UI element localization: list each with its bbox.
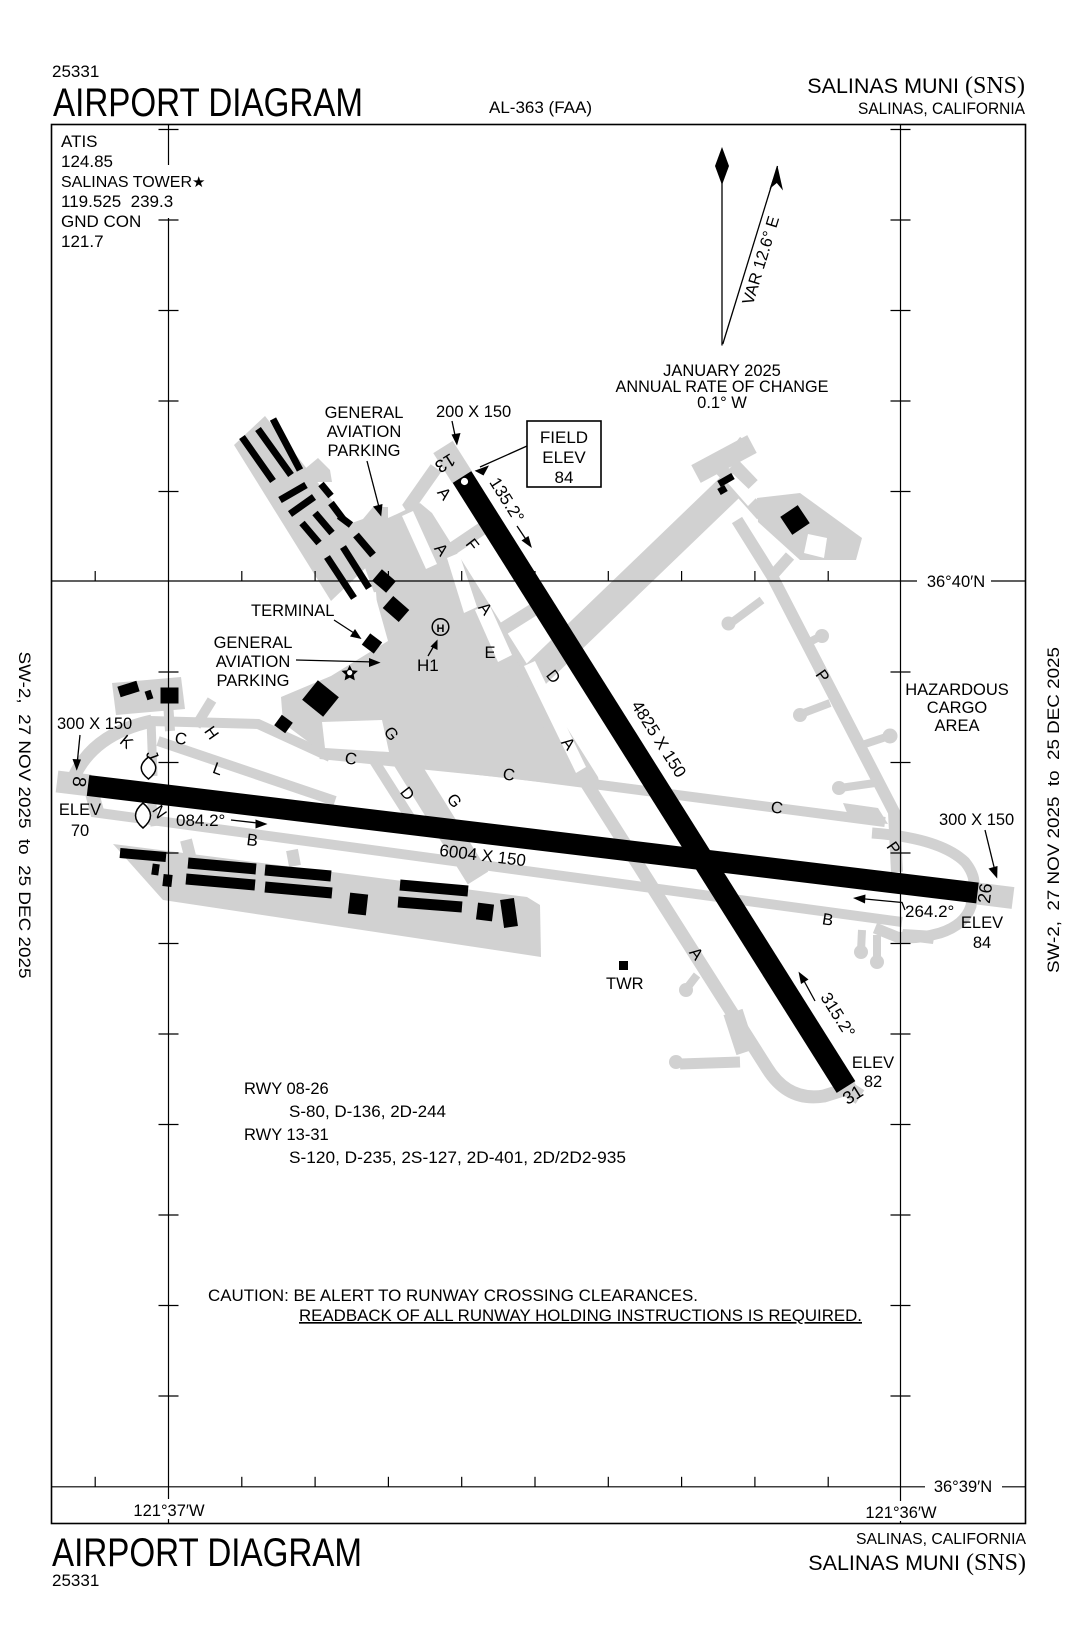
svg-text:HAZARDOUS: HAZARDOUS [905,681,1009,699]
svg-text:SALINAS, CALIFORNIA: SALINAS, CALIFORNIA [858,100,1025,118]
svg-text:SW-2, 27 NOV 2025 to 25 DEC: SW-2, 27 NOV 2025 to 25 DEC 2025 [1045,647,1063,973]
svg-text:25331: 25331 [52,1571,99,1590]
svg-text:S-120, D-235, 2S-127, 2D-401,: S-120, D-235, 2S-127, 2D-401, 2D/2D2-935 [289,1149,626,1167]
svg-text:GENERAL: GENERAL [325,404,404,422]
svg-text:CAUTION: BE ALERT TO RUNWAY CR: CAUTION: BE ALERT TO RUNWAY CROSSING CLE… [208,1287,698,1305]
svg-text:RWY 08-26: RWY 08-26 [244,1080,329,1098]
svg-text:ATIS: ATIS [61,132,98,151]
svg-text:119.525 239.3: 119.525 239.3 [61,192,173,211]
svg-text:GND CON: GND CON [61,212,141,231]
svg-text:PARKING: PARKING [327,442,400,460]
svg-text:SALINAS TOWER★: SALINAS TOWER★ [61,174,205,191]
svg-text:36°40′N: 36°40′N [927,573,985,591]
svg-text:264.2°: 264.2° [905,902,954,921]
svg-text:84: 84 [555,468,574,487]
svg-text:H: H [437,623,445,635]
svg-text:84: 84 [973,934,991,952]
svg-text:121°36′W: 121°36′W [865,1504,937,1522]
svg-text:S-80, D-136, 2D-244: S-80, D-136, 2D-244 [289,1103,446,1121]
svg-text:E: E [484,644,495,662]
svg-text:TERMINAL: TERMINAL [251,602,334,620]
svg-text:200 X 150: 200 X 150 [436,403,511,421]
svg-text:ELEV: ELEV [59,801,101,819]
svg-text:ELEV: ELEV [961,914,1003,932]
svg-text:READBACK OF ALL RUNWAY HOLDING: READBACK OF ALL RUNWAY HOLDING INSTRUCTI… [299,1307,862,1325]
svg-text:ELEV: ELEV [542,448,586,467]
svg-text:B: B [246,830,260,850]
svg-text:25331: 25331 [52,62,99,81]
svg-text:TWR: TWR [606,975,644,993]
svg-text:SALINAS MUNI (SNS): SALINAS MUNI (SNS) [807,73,1025,99]
svg-text:0.1° W: 0.1° W [697,394,747,412]
svg-text:70: 70 [71,822,89,840]
svg-text:AL-363 (FAA): AL-363 (FAA) [489,98,592,117]
svg-text:AIRPORT DIAGRAM: AIRPORT DIAGRAM [53,81,363,125]
svg-text:084.2°: 084.2° [176,811,225,830]
svg-text:AREA: AREA [935,717,980,735]
svg-text:ELEV: ELEV [852,1054,894,1072]
svg-text:82: 82 [864,1073,882,1091]
svg-text:121.7: 121.7 [61,232,104,251]
svg-text:124.85: 124.85 [61,152,113,171]
svg-text:AVIATION: AVIATION [216,653,291,671]
svg-text:H1: H1 [417,656,439,675]
svg-text:300 X 150: 300 X 150 [57,715,132,733]
svg-text:AVIATION: AVIATION [327,423,402,441]
svg-text:CARGO: CARGO [927,699,988,717]
svg-text:SW-2, 27 NOV 2025 to 25 DEC: SW-2, 27 NOV 2025 to 25 DEC 2025 [15,652,33,979]
svg-text:300 X 150: 300 X 150 [939,811,1014,829]
svg-text:PARKING: PARKING [216,672,289,690]
svg-text:FIELD: FIELD [540,428,588,447]
svg-text:AIRPORT DIAGRAM: AIRPORT DIAGRAM [52,1531,362,1575]
svg-text:RWY 13-31: RWY 13-31 [244,1126,329,1144]
svg-text:SALINAS MUNI (SNS): SALINAS MUNI (SNS) [808,1550,1026,1576]
svg-text:36°39′N: 36°39′N [934,1478,992,1496]
svg-text:GENERAL: GENERAL [214,634,293,652]
svg-text:SALINAS, CALIFORNIA: SALINAS, CALIFORNIA [856,1531,1026,1548]
svg-text:121°37′W: 121°37′W [133,1502,205,1520]
svg-text:26: 26 [974,882,996,904]
